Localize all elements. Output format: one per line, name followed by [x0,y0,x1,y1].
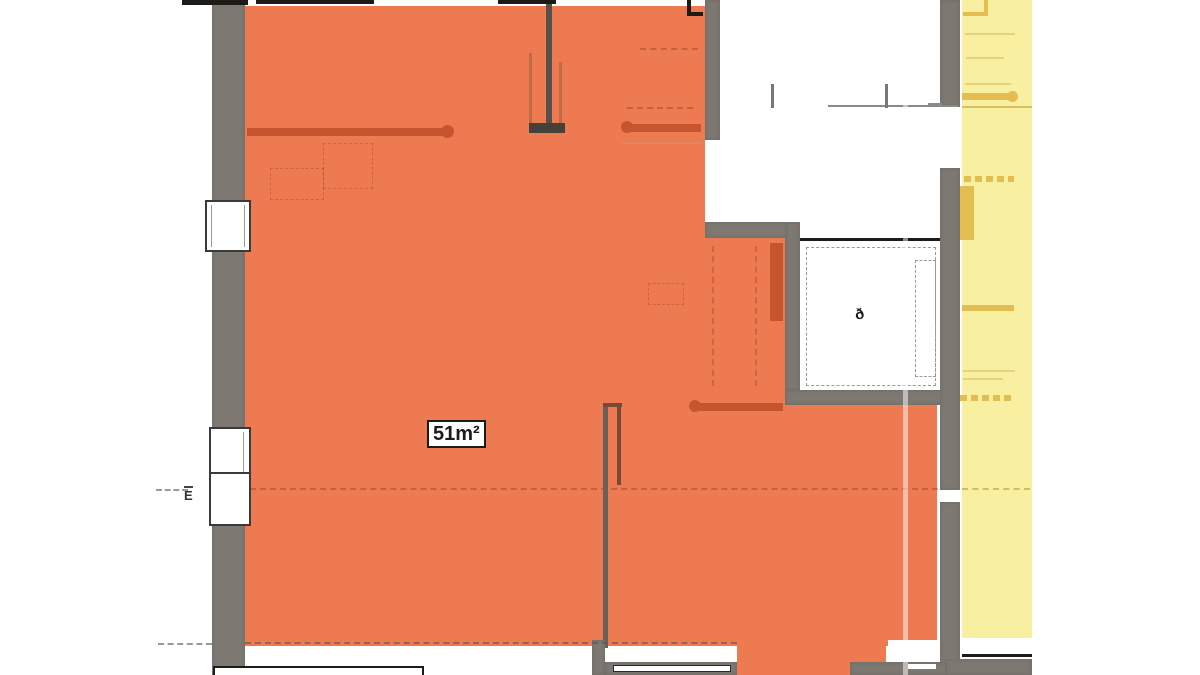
adjacent-wall-line [962,106,1032,108]
bottom-right-sill [945,659,1032,675]
adjacent-door-hinge-upper [1007,91,1018,102]
door-leaf-vertical-hall [770,243,783,321]
door-threshold-line-top [622,142,702,144]
elevator-bottom-wall [785,390,960,405]
apartment-bottom-boundary-dash [245,642,737,644]
wardrobe-dash-line-2 [755,246,757,386]
elevator-rail-outline [915,260,936,377]
adjacent-door-leaf-vertical [960,186,974,240]
adjacent-furniture-line [963,370,1015,372]
right-wall-lower [940,502,960,675]
section-dash-line-adjacent [962,488,1030,490]
adjacent-furniture-line [966,57,1004,59]
window-divider [211,472,249,474]
apartment-area-main [245,6,705,646]
adjacent-door-leaf-mid [962,305,1014,311]
stairwell-left-wall [705,0,720,140]
partition-wall-lower [603,403,608,648]
door-leaf-top [629,124,701,132]
door-leaf-lower [697,403,783,411]
bottom-right-sill-line [962,654,1032,657]
left-exterior-wall [212,0,245,675]
furniture-outline-center [648,283,684,305]
top-edge-mark [256,0,374,4]
bottom-window-glazing-right [908,664,936,669]
right-wall-tick [928,103,942,106]
left-wall-mark-text: E [184,488,193,503]
window-frame-line [211,205,212,247]
left-wall-mark: E [184,486,193,502]
adjacent-door-dash-mid [964,176,1014,182]
elevator-top-line [800,238,940,241]
kitchen-appliance-outline [323,143,373,189]
wardrobe-dash-line [712,246,714,386]
right-wall-upper [940,0,960,107]
door-frame-line-left [529,53,532,123]
partition-wall-top [546,0,552,130]
door-leaf-lower-hinge [689,400,701,412]
window-frame-line [243,432,244,472]
bottom-boundary-dash-left [158,643,212,645]
apartment-area-lower-right [785,405,937,646]
door-leaf-top-hinge [621,121,633,133]
kitchen-counter-end-cap [441,125,454,138]
kitchen-counter-line [247,128,447,136]
partition-hook-side [617,403,621,485]
adjacent-furniture-line [965,83,1011,85]
area-label-text: 51m² [433,423,480,445]
top-edge-mark [182,0,248,5]
stair-tick-right [885,84,888,108]
left-window-upper [205,200,251,252]
bottom-window-glazing-mid [613,665,731,672]
scan-streak [903,0,908,675]
bottom-left-window-frame [213,666,424,675]
kitchen-appliance-outline-2 [270,168,324,200]
right-wall-middle [940,168,960,490]
furniture-dash-top [640,48,698,50]
window-frame-line [244,205,245,247]
door-frame-cap [529,123,565,133]
left-window-lower [209,427,251,526]
stair-tick-left [771,84,774,108]
adjacent-furniture-line [963,378,1003,380]
bottom-wall-stub [592,640,605,675]
adjacent-door-frame-h [963,12,988,16]
elevator-left-wall [785,222,800,390]
adjacent-door-dash-lower [960,395,1012,401]
section-dash-line [250,488,938,490]
adjacent-furniture-line [965,33,1015,35]
bottom-opening-white [888,640,937,662]
entry-door-frame-h [687,12,703,16]
area-label: 51m² [427,420,486,448]
furniture-dash-upper [627,107,693,109]
door-frame-line-right [559,62,562,124]
floor-plan: E ð 51m² [0,0,1200,675]
top-edge-mark [498,0,556,4]
